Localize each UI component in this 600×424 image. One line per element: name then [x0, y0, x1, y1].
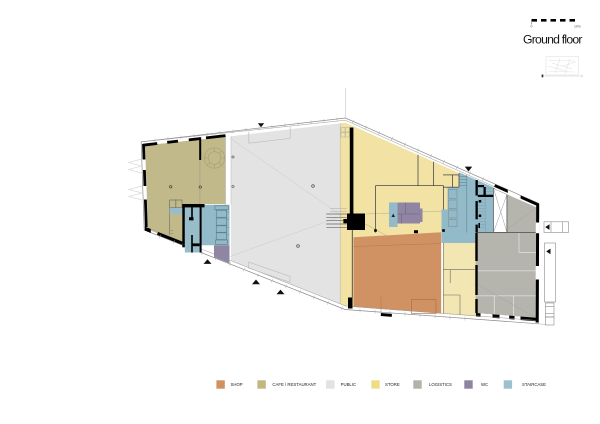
svg-text:WC: WC: [481, 382, 488, 387]
svg-text:CAFE / RESTAURANT: CAFE / RESTAURANT: [272, 382, 316, 387]
svg-text:0: 0: [531, 25, 533, 29]
svg-text:Ground floor: Ground floor: [523, 33, 582, 47]
svg-text:PUBLIC: PUBLIC: [341, 382, 357, 387]
svg-text:STORE: STORE: [385, 382, 400, 387]
svg-text:10m: 10m: [574, 25, 581, 29]
svg-text:LOGISTICS: LOGISTICS: [429, 382, 452, 387]
svg-text:STAIRCASE: STAIRCASE: [522, 382, 546, 387]
svg-text:SHOP: SHOP: [231, 382, 243, 387]
